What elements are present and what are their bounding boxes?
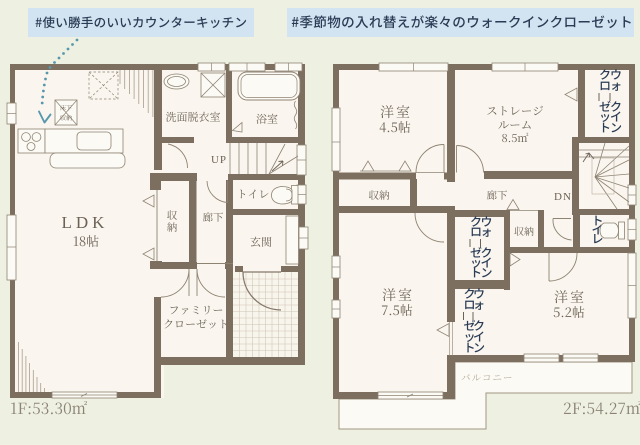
svg-text:LDK: LDK bbox=[62, 213, 109, 232]
svg-text:DN: DN bbox=[554, 191, 572, 203]
svg-text:UP: UP bbox=[211, 154, 227, 166]
